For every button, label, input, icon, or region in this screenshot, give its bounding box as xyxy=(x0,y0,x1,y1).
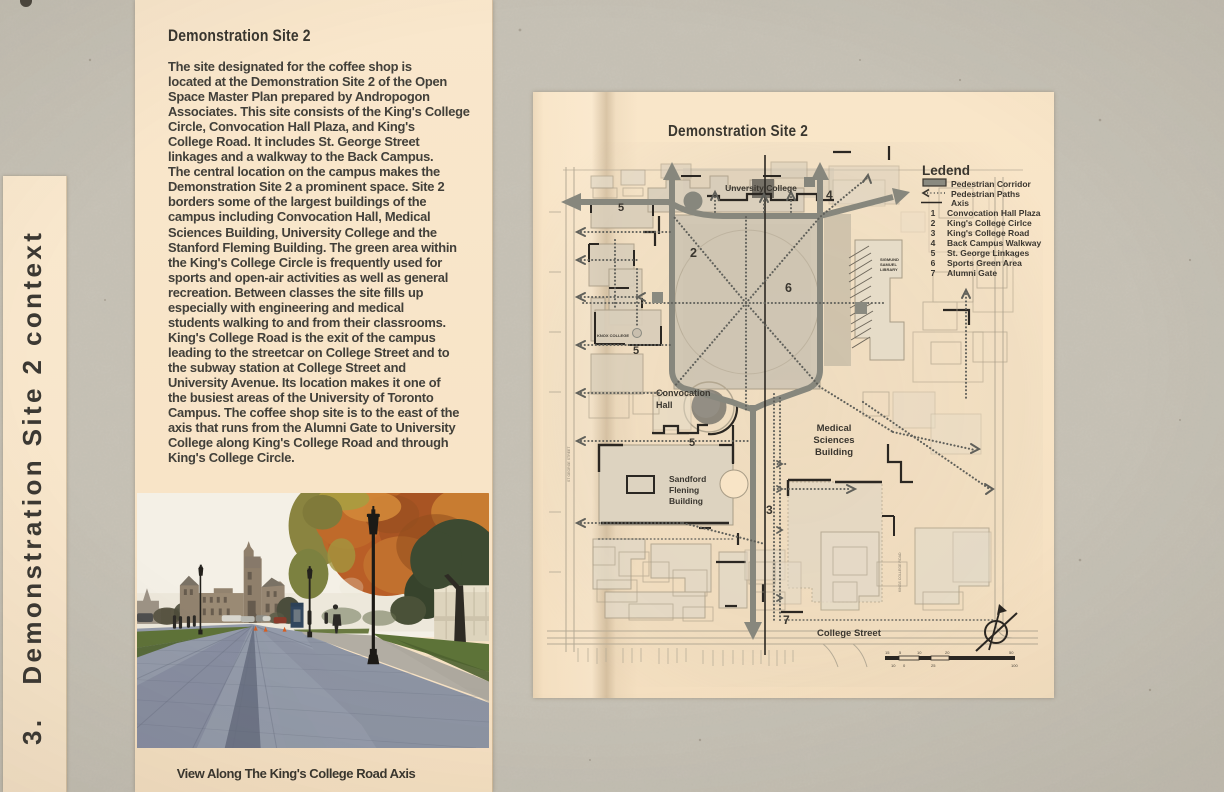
svg-text:25: 25 xyxy=(931,663,936,668)
svg-text:Medical: Medical xyxy=(817,423,852,434)
svg-text:Convocation: Convocation xyxy=(656,388,711,398)
svg-text:Sciences: Sciences xyxy=(813,435,854,446)
svg-text:Building: Building xyxy=(815,447,853,458)
svg-text:15: 15 xyxy=(885,650,890,655)
svg-text:5: 5 xyxy=(633,345,639,357)
svg-text:100: 100 xyxy=(1011,663,1018,668)
svg-text:Axis: Axis xyxy=(951,198,969,208)
svg-text:Convocation Hall Plaza: Convocation Hall Plaza xyxy=(947,208,1041,218)
svg-text:10: 10 xyxy=(917,650,922,655)
svg-text:7: 7 xyxy=(931,268,936,278)
svg-text:4: 4 xyxy=(826,188,833,202)
svg-text:5: 5 xyxy=(618,202,624,214)
svg-text:Back Campus Walkway: Back Campus Walkway xyxy=(947,238,1041,248)
svg-text:ST GEORGE STREET: ST GEORGE STREET xyxy=(567,446,571,482)
svg-text:2: 2 xyxy=(931,218,936,228)
svg-text:6: 6 xyxy=(931,258,936,268)
svg-text:Pedestrian Corridor: Pedestrian Corridor xyxy=(951,179,1032,189)
svg-text:4: 4 xyxy=(931,238,936,248)
svg-text:KINGS COLLEGE ROAD: KINGS COLLEGE ROAD xyxy=(898,552,902,592)
svg-text:Flening: Flening xyxy=(669,485,699,495)
svg-text:20: 20 xyxy=(945,650,950,655)
svg-text:College Street: College Street xyxy=(817,628,882,639)
svg-text:King's College Road: King's College Road xyxy=(947,228,1029,238)
svg-text:3: 3 xyxy=(766,503,773,517)
svg-text:King's College Cirlce: King's College Cirlce xyxy=(947,218,1032,228)
svg-text:3: 3 xyxy=(931,228,936,238)
svg-text:LIBRARY: LIBRARY xyxy=(880,267,898,272)
svg-text:St. George Linkages: St. George Linkages xyxy=(947,248,1029,258)
svg-text:1: 1 xyxy=(931,208,936,218)
svg-text:6: 6 xyxy=(785,281,792,295)
svg-text:2: 2 xyxy=(690,246,697,260)
svg-text:Sports Green Area: Sports Green Area xyxy=(947,258,1022,268)
svg-text:Building: Building xyxy=(669,496,703,506)
svg-text:KNOX COLLEGE: KNOX COLLEGE xyxy=(597,333,629,338)
svg-text:Sandford: Sandford xyxy=(669,474,706,484)
svg-text:10: 10 xyxy=(891,663,896,668)
svg-text:Ledend: Ledend xyxy=(922,163,970,178)
svg-text:5: 5 xyxy=(931,248,936,258)
svg-text:50: 50 xyxy=(1009,650,1014,655)
svg-text:5: 5 xyxy=(689,437,695,449)
svg-text:Unversity College: Unversity College xyxy=(725,183,797,193)
svg-text:7: 7 xyxy=(783,613,790,627)
svg-text:Hall: Hall xyxy=(656,400,673,410)
svg-text:Alumni Gate: Alumni Gate xyxy=(947,268,997,278)
